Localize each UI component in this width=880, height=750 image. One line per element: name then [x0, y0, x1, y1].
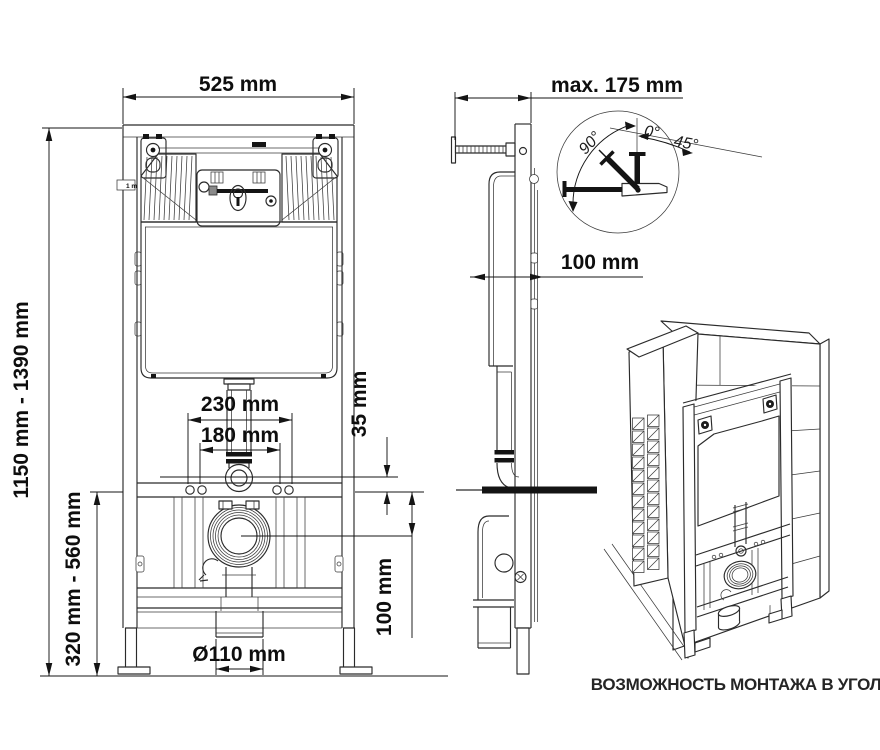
mini-label: 1 m: [126, 183, 137, 190]
corner-caption: ВОЗМОЖНОСТЬ МОНТАЖА В УГОЛ: [591, 675, 880, 694]
outlet-diameter-label: Ø110 mm: [192, 643, 285, 666]
side-mounting-bar: [482, 487, 597, 494]
rod-coupler: [209, 186, 217, 195]
front-access-panel: [197, 170, 280, 226]
height-range-label: 1150 mm - 1390 mm: [10, 301, 33, 498]
detail-circle: 90° 0° 45°: [557, 111, 762, 233]
front-cistern-body: [135, 222, 343, 390]
lower-range-label: 320 mm - 560 mm: [62, 491, 85, 666]
depth-max-label: max. 175 mm: [551, 74, 683, 97]
dim-offset-100: 100 mm: [241, 492, 415, 638]
offset-100-label: 100 mm: [373, 558, 396, 636]
flush-elbow: [226, 465, 253, 492]
width-label: 525 mm: [199, 73, 277, 96]
drain-hook: [199, 559, 218, 581]
front-view: 525 mm 1150 mm - 1390 mm 320 mm - 560 mm…: [10, 73, 448, 676]
technical-drawing-sheet: 525 mm 1150 mm - 1390 mm 320 mm - 560 mm…: [0, 0, 880, 750]
side-anchor-rod: [452, 137, 516, 163]
foot-plate-right: [340, 667, 372, 674]
corner-frame: [683, 374, 793, 658]
front-drain-collar: [199, 501, 270, 581]
front-outlet: [216, 567, 263, 637]
side-rail: [515, 124, 539, 674]
angle-45-label: 45°: [672, 133, 700, 154]
angle-0-label: 0°: [643, 123, 661, 142]
dim-cistern-depth: 100 mm: [470, 251, 643, 280]
foot-plate-left: [118, 667, 150, 674]
dim-width: 525 mm: [123, 73, 354, 124]
dim-outlet-diameter: Ø110 mm: [192, 639, 285, 675]
cistern-depth-label: 100 mm: [561, 251, 639, 274]
offset-35-label: 35 mm: [348, 371, 371, 438]
corner-view: ВОЗМОЖНОСТЬ МОНТАЖА В УГОЛ: [591, 321, 880, 694]
bolt-inner-label: 180 mm: [201, 424, 279, 447]
bolt-outer-label: 230 mm: [201, 393, 279, 416]
